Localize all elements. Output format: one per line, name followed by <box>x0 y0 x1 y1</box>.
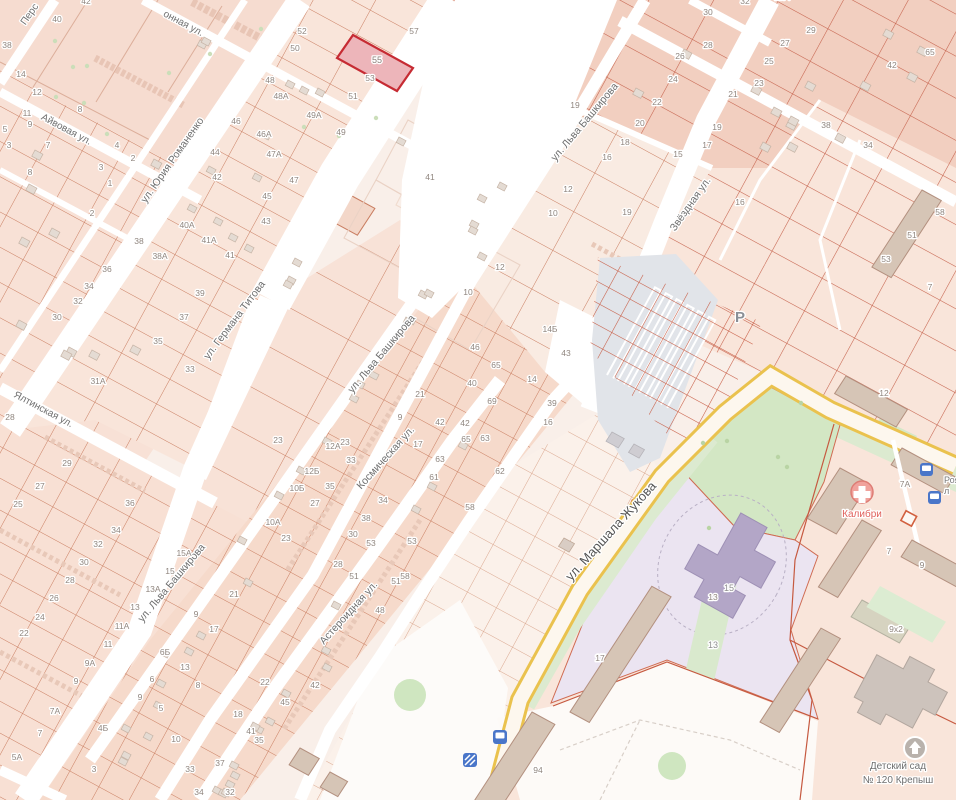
svg-text:7А: 7А <box>900 479 911 489</box>
svg-text:94: 94 <box>533 765 543 775</box>
svg-text:9: 9 <box>74 676 79 686</box>
svg-text:13: 13 <box>180 662 190 672</box>
svg-text:19: 19 <box>570 100 580 110</box>
svg-text:37: 37 <box>215 758 225 768</box>
svg-text:48: 48 <box>265 75 275 85</box>
svg-text:11: 11 <box>104 639 113 649</box>
svg-text:28: 28 <box>65 575 75 585</box>
svg-text:48: 48 <box>375 605 385 615</box>
svg-text:9х2: 9х2 <box>889 624 903 634</box>
svg-text:1: 1 <box>108 178 113 188</box>
svg-text:63: 63 <box>435 454 445 464</box>
svg-text:40: 40 <box>52 14 62 24</box>
svg-text:4: 4 <box>115 140 120 150</box>
svg-text:Роя: Роя <box>944 475 956 485</box>
svg-text:9: 9 <box>920 560 925 570</box>
svg-text:19: 19 <box>622 207 632 217</box>
svg-text:55: 55 <box>372 55 382 65</box>
svg-text:34: 34 <box>111 525 121 535</box>
svg-text:15: 15 <box>673 149 683 159</box>
svg-text:38: 38 <box>134 236 144 246</box>
svg-text:38: 38 <box>361 513 371 523</box>
svg-text:17: 17 <box>702 140 712 150</box>
svg-text:27: 27 <box>35 481 45 491</box>
svg-text:17: 17 <box>209 624 219 634</box>
svg-text:7: 7 <box>38 728 43 738</box>
svg-text:26: 26 <box>675 51 685 61</box>
svg-text:23: 23 <box>340 437 350 447</box>
svg-text:34: 34 <box>378 495 388 505</box>
svg-text:38: 38 <box>2 40 12 50</box>
svg-text:16: 16 <box>543 417 553 427</box>
svg-text:49А: 49А <box>306 110 321 120</box>
svg-text:33: 33 <box>185 764 195 774</box>
svg-text:39: 39 <box>547 398 557 408</box>
svg-text:42: 42 <box>887 60 897 70</box>
svg-text:8: 8 <box>196 680 201 690</box>
svg-text:57: 57 <box>409 26 419 36</box>
svg-text:69: 69 <box>487 396 497 406</box>
svg-text:33: 33 <box>185 364 195 374</box>
svg-text:9: 9 <box>28 119 33 129</box>
svg-text:13: 13 <box>708 640 718 650</box>
svg-text:53: 53 <box>366 538 376 548</box>
svg-text:24: 24 <box>35 612 45 622</box>
svg-text:22: 22 <box>19 628 29 638</box>
svg-text:23: 23 <box>281 533 291 543</box>
svg-text:11: 11 <box>23 108 32 118</box>
svg-text:47А: 47А <box>266 149 281 159</box>
svg-text:12: 12 <box>495 262 505 272</box>
svg-text:61: 61 <box>429 472 439 482</box>
svg-text:38А: 38А <box>152 251 167 261</box>
svg-text:15: 15 <box>724 583 734 593</box>
svg-text:2: 2 <box>131 153 136 163</box>
svg-text:9: 9 <box>398 412 403 422</box>
svg-text:38: 38 <box>821 120 831 130</box>
svg-text:16: 16 <box>735 197 745 207</box>
svg-text:23: 23 <box>754 78 764 88</box>
svg-text:18: 18 <box>233 709 243 719</box>
svg-text:32: 32 <box>73 296 83 306</box>
svg-text:12Б: 12Б <box>304 466 319 476</box>
svg-text:17: 17 <box>595 653 605 663</box>
svg-text:4Б: 4Б <box>98 723 109 733</box>
svg-text:47: 47 <box>289 175 299 185</box>
svg-text:65: 65 <box>461 434 471 444</box>
svg-text:48А: 48А <box>273 91 288 101</box>
svg-text:13: 13 <box>708 592 718 602</box>
svg-text:34: 34 <box>194 787 204 797</box>
svg-text:32: 32 <box>740 0 750 6</box>
svg-text:12: 12 <box>32 87 42 97</box>
svg-text:51: 51 <box>349 571 359 581</box>
svg-text:42: 42 <box>81 0 91 6</box>
svg-text:14Б: 14Б <box>542 324 557 334</box>
svg-text:21: 21 <box>415 389 425 399</box>
svg-text:58: 58 <box>400 571 410 581</box>
svg-text:15: 15 <box>165 566 175 576</box>
svg-text:40А: 40А <box>179 220 194 230</box>
svg-text:Р: Р <box>735 309 745 326</box>
svg-text:6: 6 <box>150 674 155 684</box>
svg-text:6Б: 6Б <box>160 647 171 657</box>
svg-text:33: 33 <box>346 455 356 465</box>
svg-text:53: 53 <box>881 254 891 264</box>
svg-text:9: 9 <box>138 692 143 702</box>
svg-text:41: 41 <box>225 250 235 260</box>
svg-text:10: 10 <box>463 287 473 297</box>
svg-text:29: 29 <box>806 25 816 35</box>
svg-text:7: 7 <box>46 140 51 150</box>
svg-text:34: 34 <box>863 140 873 150</box>
svg-text:42: 42 <box>212 172 222 182</box>
svg-text:28: 28 <box>5 412 15 422</box>
svg-text:41А: 41А <box>201 235 216 245</box>
svg-text:40: 40 <box>467 378 477 388</box>
svg-text:23: 23 <box>273 435 283 445</box>
svg-text:53: 53 <box>365 73 375 83</box>
svg-text:Детский сад: Детский сад <box>870 761 926 772</box>
svg-text:11А: 11А <box>115 621 130 631</box>
svg-text:62: 62 <box>495 466 505 476</box>
svg-text:17: 17 <box>413 439 423 449</box>
svg-text:36: 36 <box>102 264 112 274</box>
svg-text:42: 42 <box>435 417 445 427</box>
svg-text:30: 30 <box>79 557 89 567</box>
svg-text:16: 16 <box>602 152 612 162</box>
svg-text:29: 29 <box>62 458 72 468</box>
svg-text:19: 19 <box>712 122 722 132</box>
svg-text:2: 2 <box>90 208 95 218</box>
svg-text:13А: 13А <box>145 584 160 594</box>
svg-text:22: 22 <box>652 97 662 107</box>
svg-text:5А: 5А <box>12 752 23 762</box>
svg-text:14: 14 <box>527 374 537 384</box>
svg-text:39: 39 <box>195 288 205 298</box>
svg-text:9А: 9А <box>85 658 96 668</box>
svg-text:8: 8 <box>78 104 83 114</box>
svg-text:22: 22 <box>260 677 270 687</box>
svg-text:3: 3 <box>99 162 104 172</box>
svg-text:42: 42 <box>310 680 320 690</box>
svg-text:53: 53 <box>407 536 417 546</box>
svg-text:27: 27 <box>310 498 320 508</box>
svg-text:13: 13 <box>130 602 140 612</box>
svg-text:31А: 31А <box>90 376 105 386</box>
svg-text:25: 25 <box>764 56 774 66</box>
svg-text:3: 3 <box>7 140 12 150</box>
svg-text:25: 25 <box>13 499 23 509</box>
svg-text:58: 58 <box>935 207 945 217</box>
svg-text:14: 14 <box>16 69 26 79</box>
svg-text:28: 28 <box>333 559 343 569</box>
svg-text:51: 51 <box>907 230 917 240</box>
svg-text:26: 26 <box>49 593 59 603</box>
svg-text:43: 43 <box>261 216 271 226</box>
svg-text:12: 12 <box>563 184 573 194</box>
svg-text:27: 27 <box>780 38 790 48</box>
svg-text:63: 63 <box>480 433 490 443</box>
svg-text:3: 3 <box>92 764 97 774</box>
svg-text:35: 35 <box>254 735 264 745</box>
svg-text:30: 30 <box>348 529 358 539</box>
svg-text:35: 35 <box>153 336 163 346</box>
svg-text:45: 45 <box>280 697 290 707</box>
svg-text:43: 43 <box>561 348 571 358</box>
svg-text:20: 20 <box>635 118 645 128</box>
svg-text:10: 10 <box>171 734 181 744</box>
svg-text:37: 37 <box>179 312 189 322</box>
svg-text:65: 65 <box>925 47 935 57</box>
svg-text:50: 50 <box>290 43 300 53</box>
svg-text:л: л <box>944 486 949 496</box>
svg-text:41: 41 <box>425 172 435 182</box>
svg-text:15А: 15А <box>176 548 191 558</box>
svg-text:45: 45 <box>262 191 272 201</box>
svg-text:28: 28 <box>703 40 713 50</box>
svg-text:52: 52 <box>297 26 307 36</box>
svg-text:42: 42 <box>460 418 470 428</box>
svg-text:29А: 29А <box>774 0 789 2</box>
svg-text:35: 35 <box>325 481 335 491</box>
svg-text:44: 44 <box>210 147 220 157</box>
svg-text:30: 30 <box>703 7 713 17</box>
svg-text:46: 46 <box>231 116 241 126</box>
svg-text:36: 36 <box>125 498 135 508</box>
svg-text:21: 21 <box>728 89 738 99</box>
svg-text:12А: 12А <box>325 441 340 451</box>
svg-text:5: 5 <box>3 124 8 134</box>
svg-text:8: 8 <box>28 167 33 177</box>
svg-text:7: 7 <box>928 282 933 292</box>
svg-text:32: 32 <box>225 787 235 797</box>
svg-text:32: 32 <box>93 539 103 549</box>
svg-text:18: 18 <box>620 137 630 147</box>
svg-text:№ 120 Крепыш: № 120 Крепыш <box>863 775 934 786</box>
svg-text:24: 24 <box>668 74 678 84</box>
svg-text:51: 51 <box>348 91 358 101</box>
svg-text:9: 9 <box>194 609 199 619</box>
svg-text:10А: 10А <box>265 517 280 527</box>
svg-text:30: 30 <box>52 312 62 322</box>
svg-text:Калибри: Калибри <box>842 508 882 520</box>
svg-text:34: 34 <box>84 281 94 291</box>
svg-text:5: 5 <box>159 703 164 713</box>
svg-text:7А: 7А <box>50 706 61 716</box>
svg-text:58: 58 <box>465 502 475 512</box>
svg-text:65: 65 <box>491 360 501 370</box>
svg-text:10: 10 <box>548 208 558 218</box>
svg-text:46А: 46А <box>256 129 271 139</box>
svg-text:7: 7 <box>887 546 892 556</box>
svg-text:21: 21 <box>229 589 239 599</box>
svg-text:12: 12 <box>879 388 889 398</box>
svg-text:49: 49 <box>336 127 346 137</box>
svg-text:10Б: 10Б <box>289 483 304 493</box>
svg-text:46: 46 <box>470 342 480 352</box>
